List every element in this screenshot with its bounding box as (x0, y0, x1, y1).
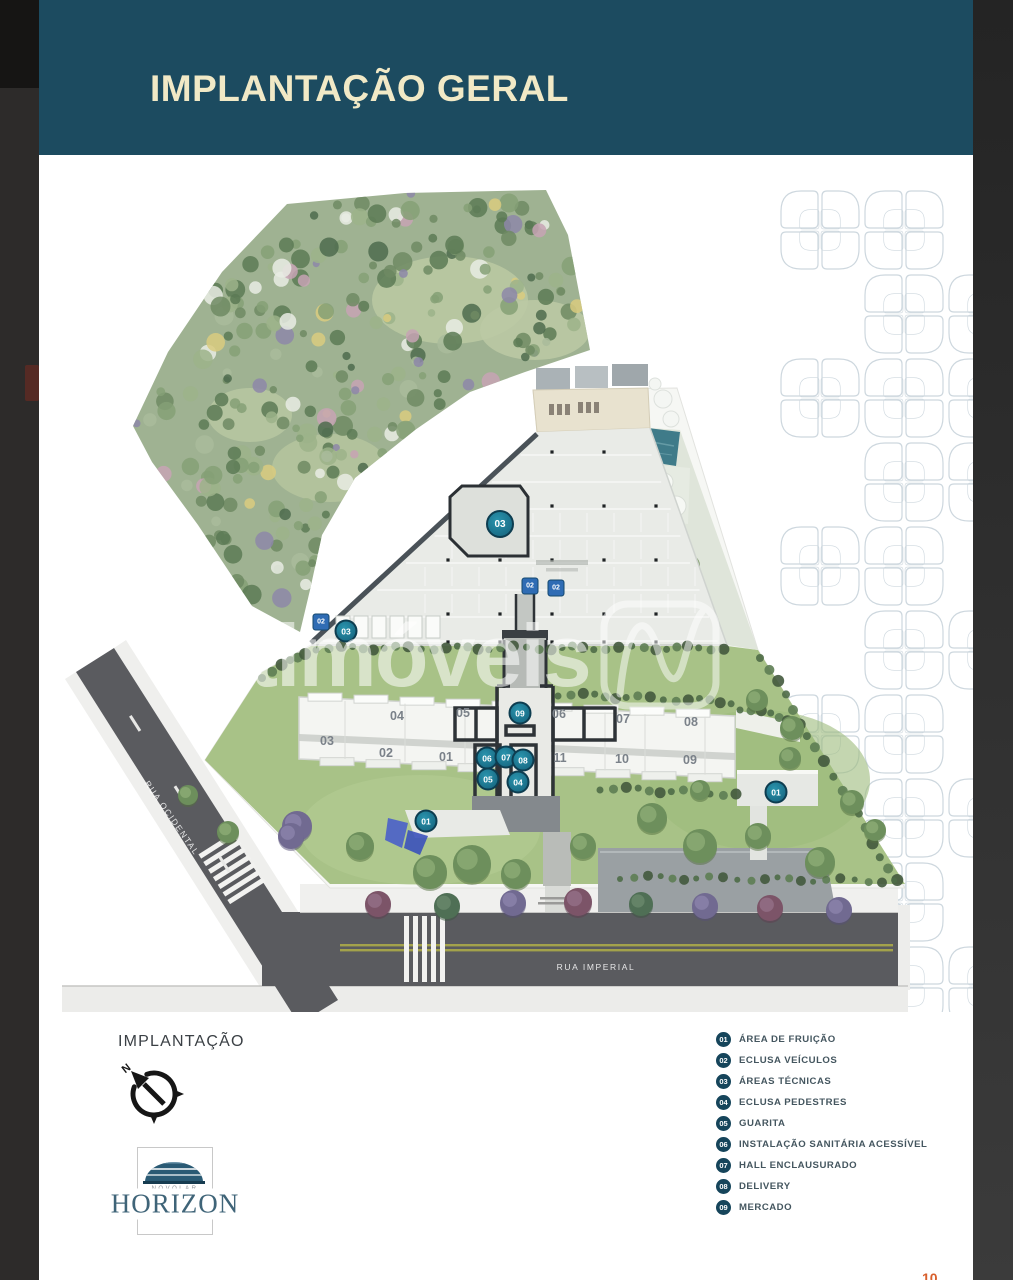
logo-name: HORIZON (108, 1189, 243, 1220)
legend-badge-03: 03 (716, 1074, 731, 1089)
legend-label: INSTALAÇÃO SANITÁRIA ACESSÍVEL (739, 1139, 927, 1150)
legend-badge-05: 05 (716, 1116, 731, 1131)
north-compass-icon: N (118, 1058, 190, 1130)
legend-item-04: 04ECLUSA PEDESTRES (716, 1095, 927, 1110)
legend-item-08: 08DELIVERY (716, 1179, 927, 1194)
legend-item-01: 01ÁREA DE FRUIÇÃO (716, 1032, 927, 1047)
legend-badge-04: 04 (716, 1095, 731, 1110)
legend-badge-07: 07 (716, 1158, 731, 1173)
left-app-background (0, 0, 39, 1280)
legend-item-06: 06INSTALAÇÃO SANITÁRIA ACESSÍVEL (716, 1137, 927, 1152)
legend-label: ECLUSA PEDESTRES (739, 1097, 847, 1108)
page-number: 10 (922, 1270, 938, 1280)
left-strip-thumbnail (25, 365, 39, 401)
legend-label: ECLUSA VEÍCULOS (739, 1055, 837, 1066)
legend-label: ÁREAS TÉCNICAS (739, 1076, 831, 1087)
page-header: IMPLANTAÇÃO GERAL (39, 0, 973, 155)
legend-label: HALL ENCLAUSURADO (739, 1160, 857, 1171)
implantacao-label: IMPLANTAÇÃO (118, 1033, 245, 1051)
legend-badge-08: 08 (716, 1179, 731, 1194)
page-title: IMPLANTAÇÃO GERAL (150, 68, 569, 110)
legend: 01ÁREA DE FRUIÇÃO02ECLUSA VEÍCULOS03ÁREA… (716, 1032, 927, 1221)
svg-text:N: N (120, 1062, 134, 1076)
legend-item-03: 03ÁREAS TÉCNICAS (716, 1074, 927, 1089)
legend-label: DELIVERY (739, 1181, 791, 1192)
left-strip-shadow (0, 0, 39, 88)
legend-label: ÁREA DE FRUIÇÃO (739, 1034, 836, 1045)
legend-label: GUARITA (739, 1118, 786, 1129)
legend-item-09: 09MERCADO (716, 1200, 927, 1215)
right-app-background (973, 0, 1013, 1280)
horizon-logo-arc-icon (138, 1148, 210, 1186)
legend-item-05: 05GUARITA (716, 1116, 927, 1131)
page: IMPLANTAÇÃO GERAL 0203030202090607080504… (0, 0, 1013, 1280)
legend-badge-01: 01 (716, 1032, 731, 1047)
legend-item-02: 02ECLUSA VEÍCULOS (716, 1053, 927, 1068)
legend-item-07: 07HALL ENCLAUSURADO (716, 1158, 927, 1173)
legend-badge-09: 09 (716, 1200, 731, 1215)
legend-badge-06: 06 (716, 1137, 731, 1152)
legend-label: MERCADO (739, 1202, 792, 1213)
legend-badge-02: 02 (716, 1053, 731, 1068)
